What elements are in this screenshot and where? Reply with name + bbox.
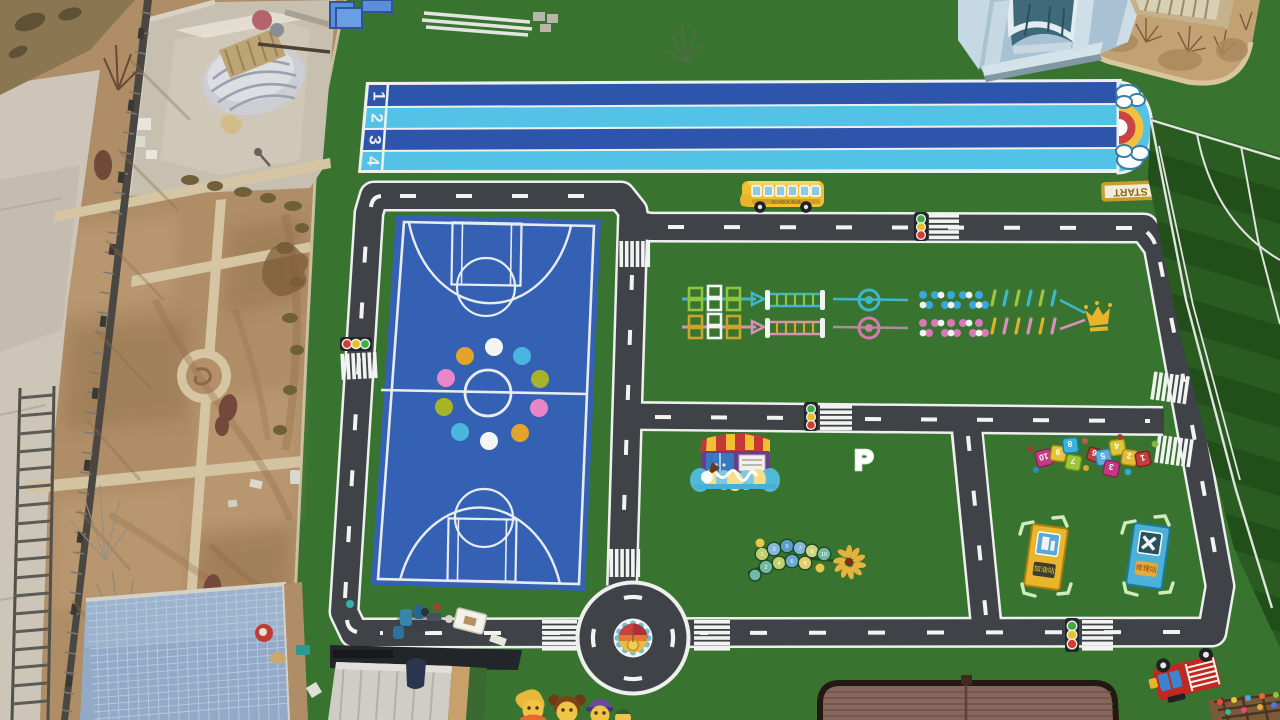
svg-text:1: 1 <box>370 91 389 100</box>
svg-text:4: 4 <box>777 561 780 567</box>
svg-text:9: 9 <box>810 549 813 555</box>
svg-text:5: 5 <box>785 544 788 550</box>
svg-text:P: P <box>855 444 874 475</box>
svg-text:8: 8 <box>803 561 806 567</box>
svg-text:4: 4 <box>364 156 383 166</box>
svg-text:SCHOOL BUS: SCHOOL BUS <box>771 200 800 205</box>
svg-text:1: 1 <box>760 552 763 558</box>
svg-text:3: 3 <box>772 547 775 553</box>
svg-text:2: 2 <box>764 565 767 571</box>
svg-text:10: 10 <box>821 552 827 558</box>
svg-text:START: START <box>1113 185 1148 198</box>
svg-text:3: 3 <box>366 135 385 144</box>
svg-text:6: 6 <box>790 559 793 565</box>
svg-text:2: 2 <box>368 113 387 122</box>
svg-text:7: 7 <box>798 546 801 552</box>
